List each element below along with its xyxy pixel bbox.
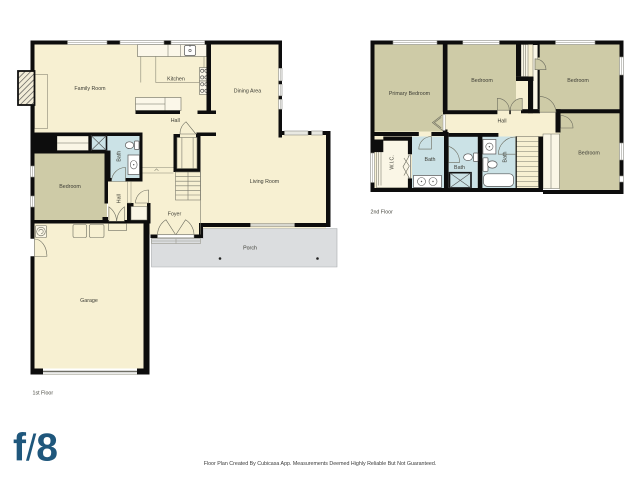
- svg-text:Bath: Bath: [454, 165, 465, 171]
- svg-text:Kitchen: Kitchen: [167, 76, 185, 82]
- svg-text:Bedroom: Bedroom: [59, 184, 81, 190]
- svg-text:W.I.C.: W.I.C.: [390, 155, 396, 169]
- svg-text:Hall: Hall: [117, 194, 123, 203]
- svg-text:Bedroom: Bedroom: [471, 78, 493, 84]
- svg-text:Bedroom: Bedroom: [578, 150, 600, 156]
- svg-text:Living Room: Living Room: [250, 179, 280, 185]
- svg-text:Hall: Hall: [497, 118, 506, 124]
- svg-text:Foyer: Foyer: [168, 211, 182, 217]
- svg-text:Garage: Garage: [80, 298, 98, 304]
- svg-text:Bath: Bath: [425, 157, 436, 163]
- svg-text:Bath: Bath: [502, 152, 508, 163]
- svg-text:Bedroom: Bedroom: [567, 78, 589, 84]
- svg-text:Floor Plan Created By Cubicasa: Floor Plan Created By Cubicasa App. Meas…: [204, 461, 437, 467]
- svg-text:Dining Area: Dining Area: [234, 89, 261, 95]
- svg-text:Porch: Porch: [243, 245, 257, 251]
- svg-text:Family Room: Family Room: [74, 86, 106, 92]
- svg-text:2nd Floor: 2nd Floor: [371, 209, 394, 215]
- svg-text:Primary Bedroom: Primary Bedroom: [389, 91, 431, 97]
- svg-text:f/8: f/8: [13, 427, 58, 470]
- svg-text:Bath: Bath: [117, 151, 123, 162]
- svg-text:Hall: Hall: [171, 118, 180, 124]
- svg-text:1st Floor: 1st Floor: [33, 391, 54, 397]
